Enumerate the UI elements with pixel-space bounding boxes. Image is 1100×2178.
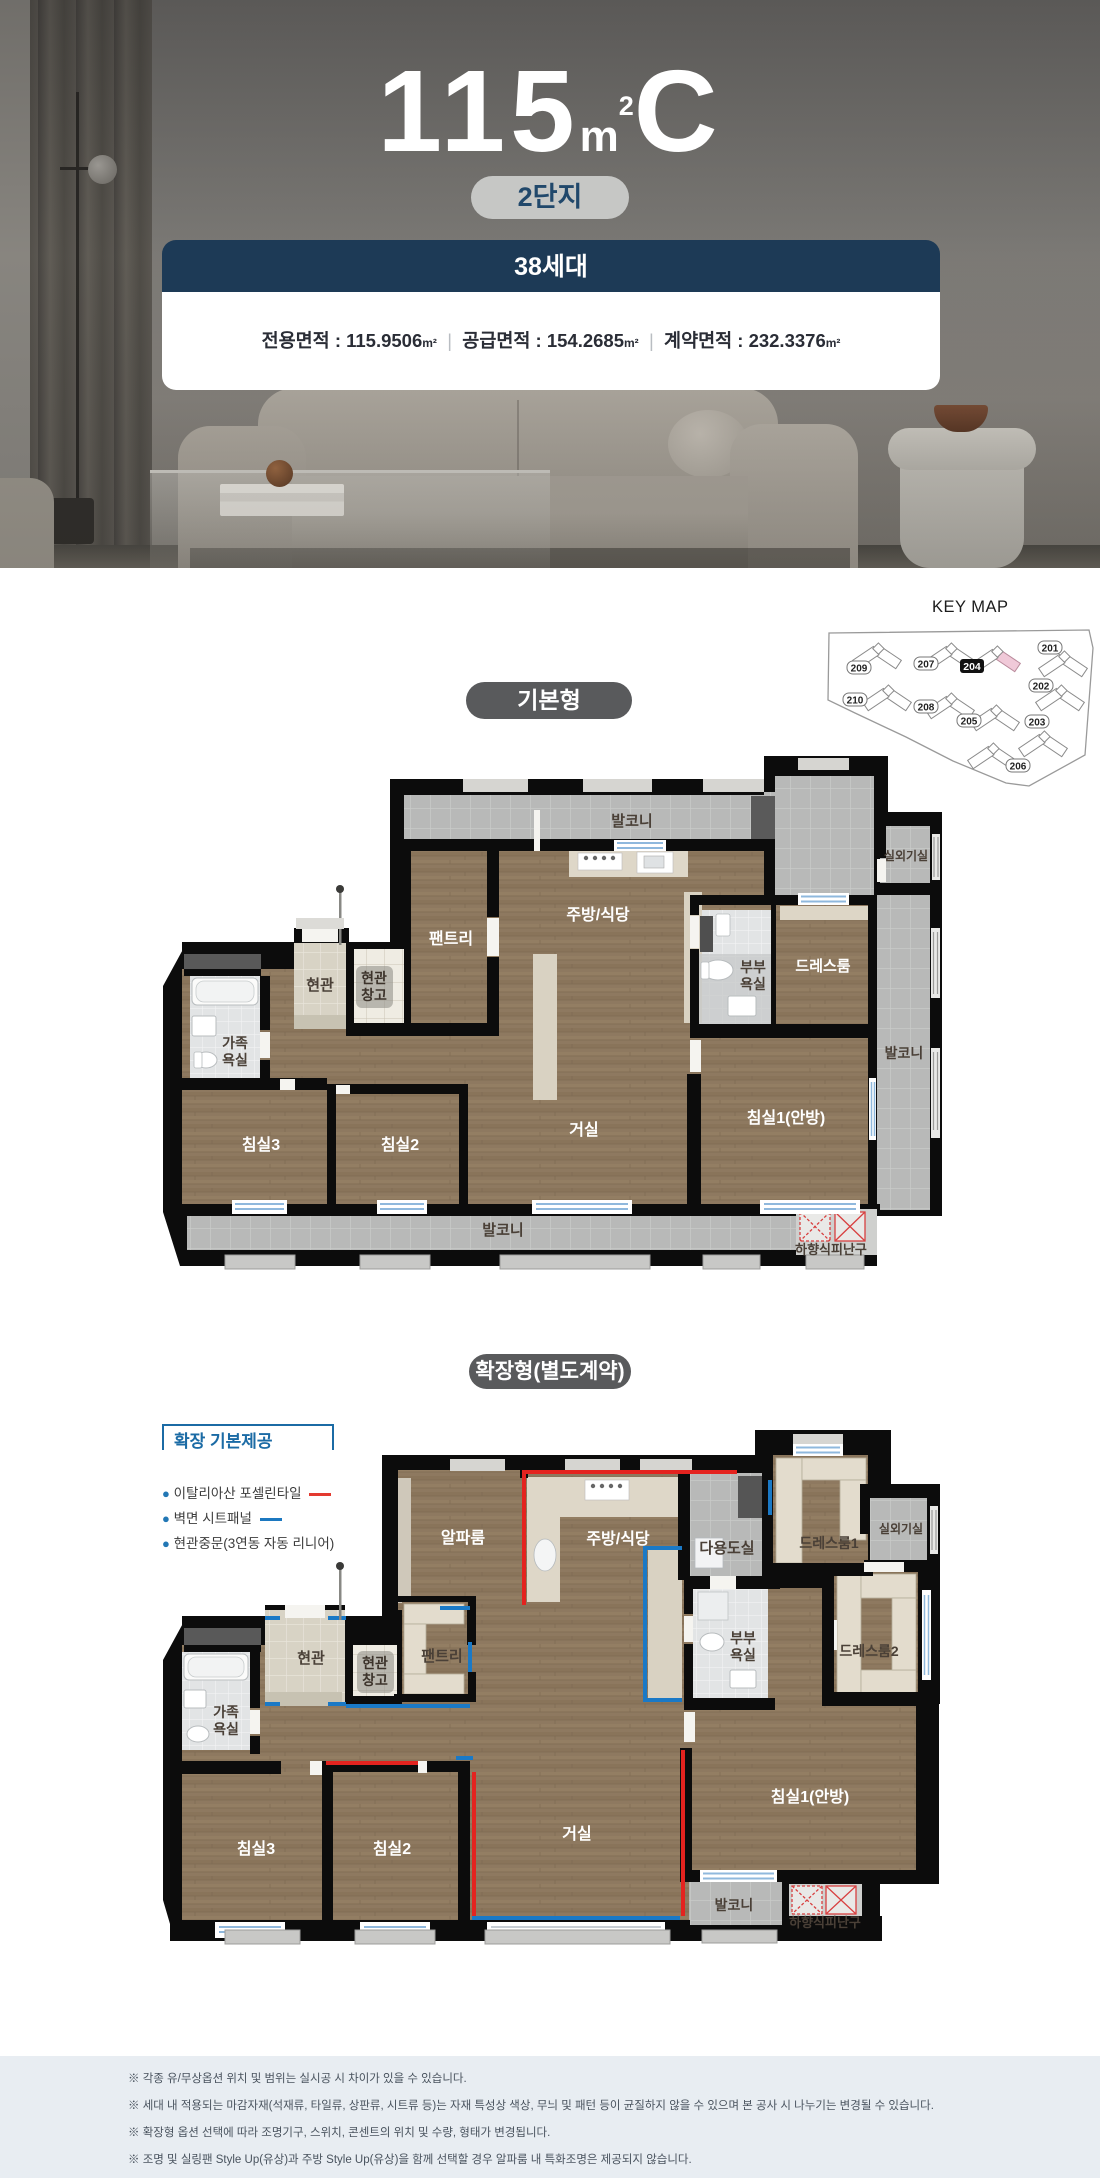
svg-text:현관: 현관	[362, 1655, 388, 1671]
svg-text:창고: 창고	[361, 987, 387, 1003]
svg-text:욕실: 욕실	[740, 976, 766, 992]
svg-text:발코니: 발코니	[611, 813, 652, 830]
svg-text:거실: 거실	[562, 1825, 591, 1843]
svg-text:202: 202	[1033, 682, 1050, 693]
svg-text:침실3: 침실3	[242, 1135, 280, 1154]
svg-text:가족: 가족	[213, 1704, 239, 1720]
svg-text:드레스룸1: 드레스룸1	[799, 1535, 859, 1551]
svg-text:팬트리: 팬트리	[421, 1648, 462, 1665]
svg-text:발코니: 발코니	[885, 1045, 924, 1061]
svg-text:실외기실: 실외기실	[884, 848, 928, 863]
svg-text:침실1(안방): 침실1(안방)	[747, 1108, 825, 1127]
svg-text:다용도실: 다용도실	[699, 1540, 754, 1557]
svg-text:203: 203	[1029, 718, 1046, 729]
svg-text:침실1(안방): 침실1(안방)	[771, 1787, 849, 1806]
svg-text:발코니: 발코니	[715, 1897, 754, 1913]
svg-text:부부: 부부	[730, 1630, 756, 1646]
svg-text:205: 205	[961, 717, 978, 728]
svg-text:창고: 창고	[362, 1672, 388, 1688]
svg-text:침실2: 침실2	[381, 1135, 419, 1154]
svg-text:204: 204	[963, 661, 981, 673]
svg-text:210: 210	[847, 696, 864, 707]
svg-text:하향식피난구: 하향식피난구	[789, 1915, 861, 1930]
svg-text:팬트리: 팬트리	[429, 930, 473, 948]
svg-text:부부: 부부	[740, 959, 766, 975]
svg-text:현관: 현관	[361, 970, 387, 986]
svg-text:발코니: 발코니	[482, 1222, 523, 1239]
svg-text:드레스룸: 드레스룸	[795, 958, 850, 975]
svg-text:욕실: 욕실	[730, 1647, 756, 1663]
svg-text:알파룸: 알파룸	[441, 1529, 485, 1547]
svg-text:가족: 가족	[222, 1035, 248, 1051]
svg-text:욕실: 욕실	[222, 1052, 248, 1068]
svg-text:침실3: 침실3	[237, 1839, 275, 1858]
svg-text:209: 209	[851, 664, 868, 675]
svg-text:207: 207	[918, 660, 935, 671]
svg-text:현관: 현관	[306, 977, 334, 994]
svg-text:201: 201	[1042, 644, 1059, 655]
svg-text:드레스룸2: 드레스룸2	[839, 1643, 899, 1659]
svg-text:현관: 현관	[297, 1650, 325, 1667]
svg-text:실외기실: 실외기실	[879, 1521, 923, 1536]
svg-text:208: 208	[918, 703, 935, 714]
svg-text:욕실: 욕실	[213, 1721, 239, 1737]
svg-text:주방/식당: 주방/식당	[586, 1530, 650, 1548]
svg-text:주방/식당: 주방/식당	[566, 906, 630, 924]
svg-text:침실2: 침실2	[373, 1839, 411, 1858]
svg-text:거실: 거실	[569, 1121, 598, 1139]
svg-text:206: 206	[1010, 762, 1027, 773]
svg-text:하향식피난구: 하향식피난구	[795, 1242, 867, 1257]
